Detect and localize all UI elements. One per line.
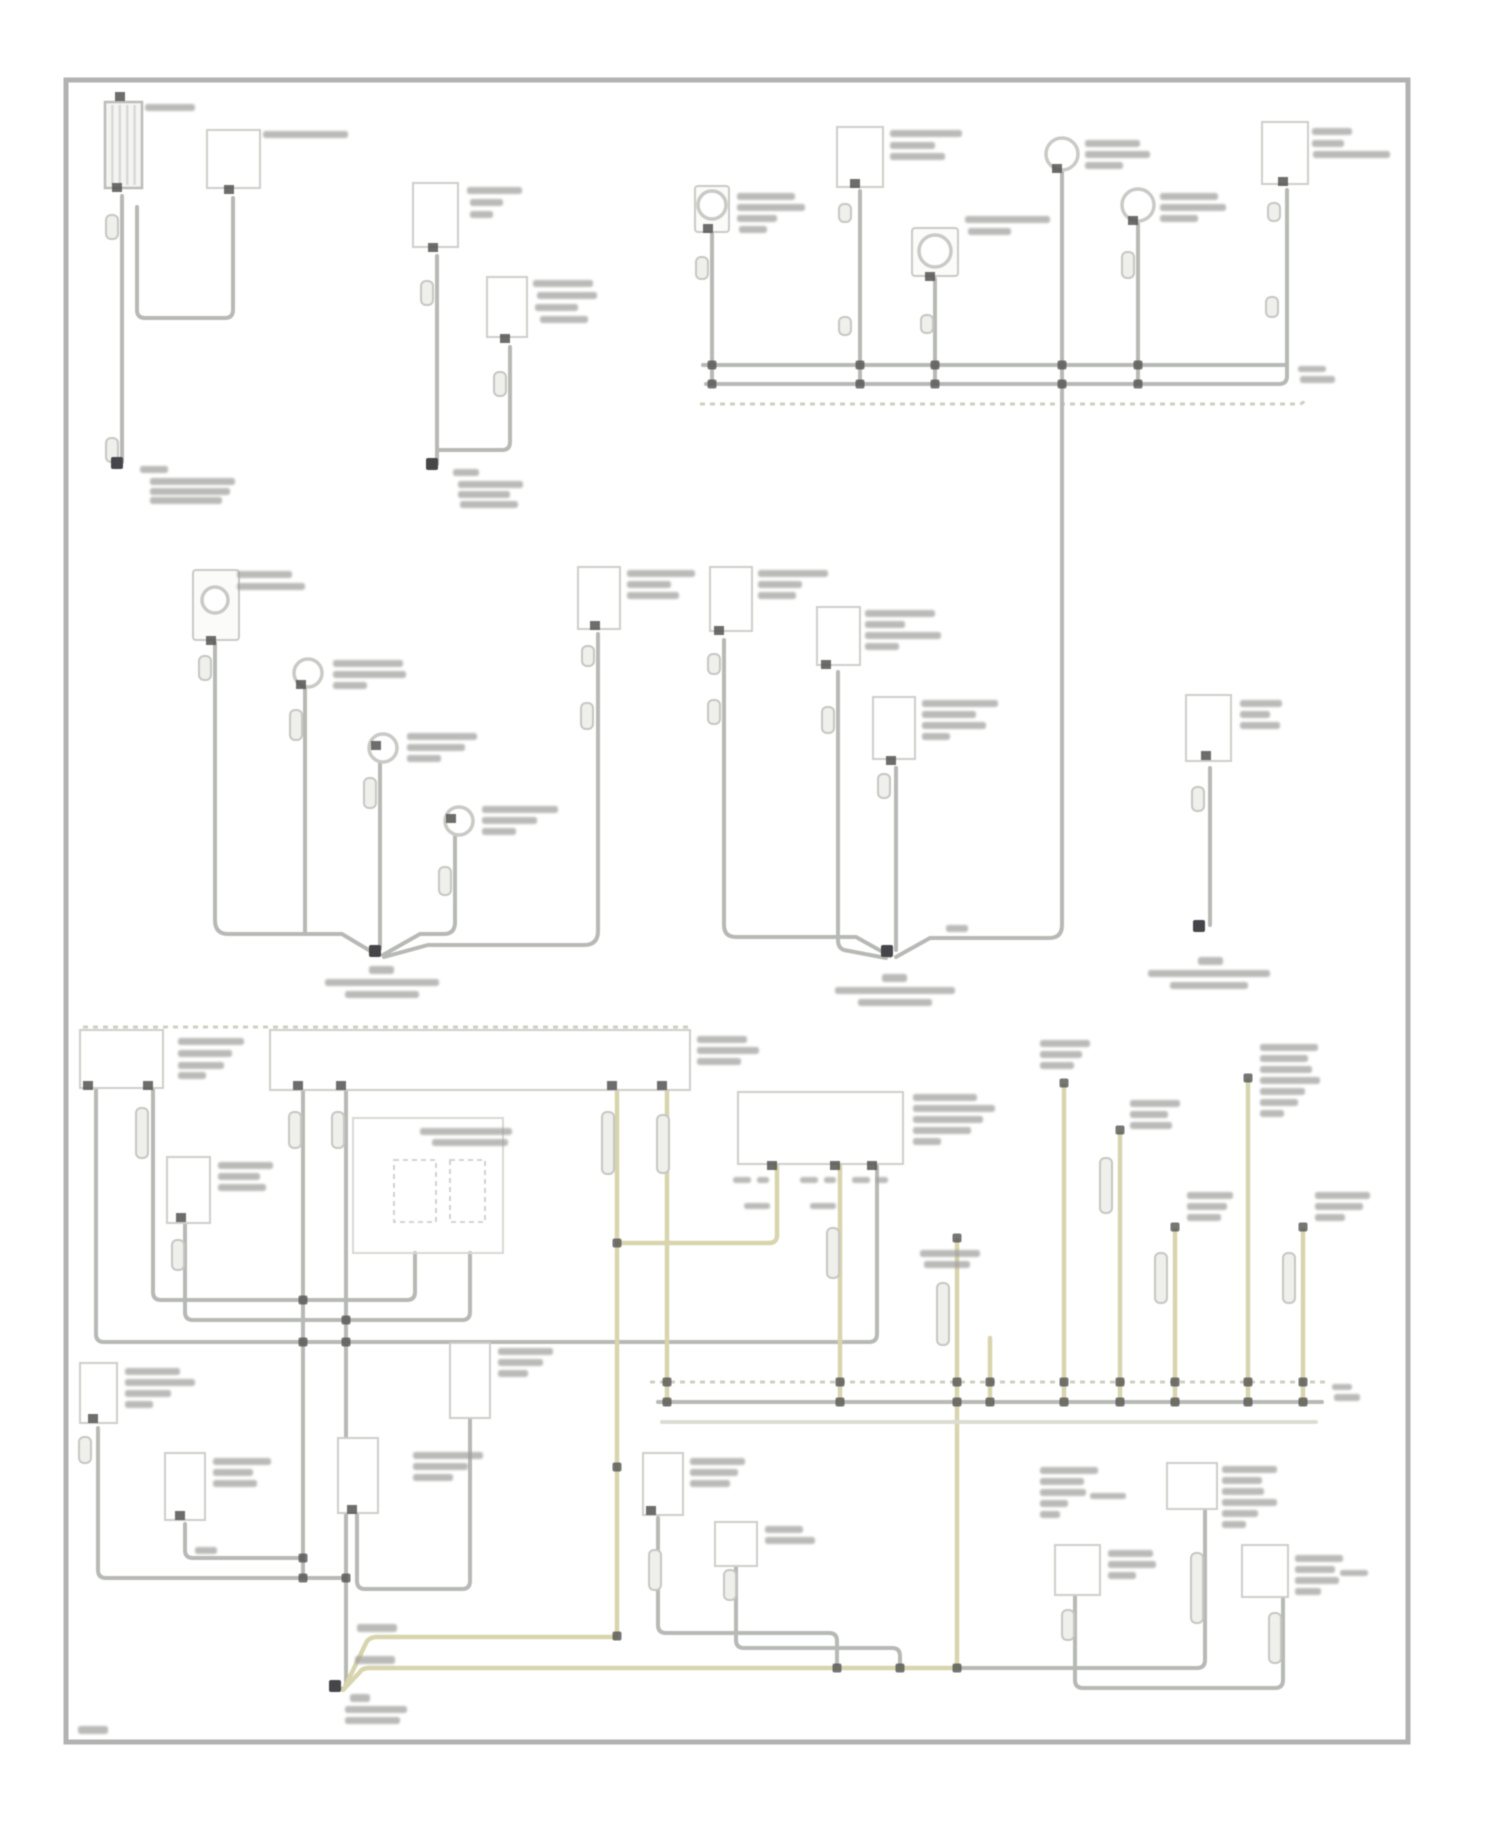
connector-bracket-icon <box>199 656 211 680</box>
wire <box>736 1567 900 1668</box>
label-text-smudge <box>690 1469 738 1476</box>
label-text-smudge <box>922 733 950 740</box>
connector-bracket-icon <box>827 1228 839 1278</box>
label-text-smudge <box>420 1128 512 1135</box>
junction-dot <box>299 1574 308 1583</box>
label-text-smudge <box>1222 1477 1262 1484</box>
terminal-square <box>347 1505 357 1514</box>
component-box <box>80 1363 117 1423</box>
label-text-smudge <box>78 1726 108 1734</box>
junction-dot <box>1244 1074 1253 1083</box>
junction-dot <box>856 380 865 389</box>
terminal-square <box>112 183 122 192</box>
connector-bracket-icon <box>421 281 433 305</box>
label-text-smudge <box>345 1717 400 1724</box>
component-box <box>413 183 458 247</box>
label-text-smudge <box>1108 1561 1156 1568</box>
label-text-smudge <box>1260 1055 1308 1062</box>
terminal-square <box>446 814 456 823</box>
junction-dot <box>953 1234 962 1243</box>
label-text-smudge <box>824 1177 836 1183</box>
label-text-smudge <box>876 1177 888 1183</box>
label-text-smudge <box>213 1480 257 1487</box>
label-text-smudge <box>1260 1077 1320 1084</box>
label-text-smudge <box>697 1047 759 1054</box>
component-box <box>873 697 915 759</box>
label-text-smudge <box>913 1105 995 1112</box>
wire <box>724 640 890 956</box>
label-text-smudge <box>913 1138 941 1145</box>
label-text-smudge <box>697 1036 747 1043</box>
dashed-line <box>700 397 1305 404</box>
junction-dot <box>896 1664 905 1673</box>
label-text-smudge <box>968 228 1011 235</box>
label-text-smudge <box>858 999 932 1006</box>
junction-dot <box>663 1378 672 1387</box>
label-text-smudge <box>150 497 222 504</box>
terminal-square <box>143 1081 153 1090</box>
terminal-square <box>176 1213 186 1222</box>
connector-bracket-icon <box>649 1550 661 1590</box>
junction-dot <box>613 1239 622 1248</box>
label-text-smudge <box>1040 1500 1068 1507</box>
component-box <box>738 1092 903 1164</box>
label-text-smudge <box>1040 1051 1082 1058</box>
label-text-smudge <box>1222 1510 1258 1517</box>
connector-bracket-icon <box>708 654 720 674</box>
lamp-icon <box>202 587 228 613</box>
component-box <box>270 1030 690 1090</box>
terminal-square <box>657 1081 667 1090</box>
label-text-smudge <box>1148 970 1270 977</box>
label-text-smudge <box>470 199 503 206</box>
label-text-smudge <box>852 1177 870 1183</box>
label-text-smudge <box>1040 1478 1084 1485</box>
junction-dot <box>342 1316 351 1325</box>
ground-distribution-diagram <box>0 0 1500 1828</box>
terminal-square <box>428 243 438 252</box>
label-text-smudge <box>1240 711 1270 718</box>
junction-dot <box>953 1378 962 1387</box>
connector-bracket-icon <box>106 215 118 239</box>
label-text-smudge <box>865 610 935 617</box>
junction-dot <box>836 1378 845 1387</box>
connector-bracket-icon <box>1062 1610 1074 1640</box>
label-text-smudge <box>178 1050 232 1057</box>
wire <box>98 1428 346 1578</box>
label-text-smudge <box>432 1139 508 1146</box>
junction-dot <box>833 1664 842 1673</box>
component-box <box>837 127 883 187</box>
label-text-smudge <box>1130 1111 1168 1118</box>
label-text-smudge <box>355 1656 395 1664</box>
relay-dashed-box <box>394 1160 436 1222</box>
label-text-smudge <box>922 700 998 707</box>
label-text-smudge <box>413 1474 453 1481</box>
label-text-smudge <box>758 581 802 588</box>
connector-bracket-icon <box>1122 252 1134 278</box>
junction-dot <box>1171 1378 1180 1387</box>
label-text-smudge <box>922 722 986 729</box>
junction-dot <box>1299 1223 1308 1232</box>
label-text-smudge <box>946 925 968 932</box>
component-box <box>715 1522 757 1566</box>
label-text-smudge <box>453 469 479 476</box>
label-text-smudge <box>1340 1570 1368 1576</box>
label-text-smudge <box>213 1458 271 1465</box>
component-box <box>710 567 752 631</box>
label-text-smudge <box>345 991 419 998</box>
label-text-smudge <box>965 216 1050 223</box>
label-text-smudge <box>125 1368 180 1375</box>
terminal-square <box>224 185 234 194</box>
terminal-square <box>500 334 510 343</box>
terminal-square <box>336 1081 346 1090</box>
label-text-smudge <box>1160 193 1218 200</box>
label-text-smudge <box>733 1177 751 1183</box>
connector-bracket-icon <box>602 1112 614 1174</box>
component-box <box>1262 122 1308 184</box>
label-text-smudge <box>697 1058 741 1065</box>
component-boxes <box>80 122 1308 1597</box>
label-text-smudge <box>765 1526 803 1533</box>
junction-dot <box>986 1398 995 1407</box>
label-text-smudge <box>498 1370 528 1377</box>
junction-dot <box>986 1378 995 1387</box>
label-text-smudge <box>145 104 195 111</box>
label-text-smudge <box>765 1537 815 1544</box>
label-text-smudge <box>1085 162 1123 169</box>
connector-bracket-icon <box>839 204 851 222</box>
component-box <box>338 1438 378 1513</box>
label-text-smudge <box>1187 1203 1227 1210</box>
label-text-smudge <box>865 643 899 650</box>
label-text-smudge <box>627 592 679 599</box>
label-text-smudge <box>237 583 305 590</box>
label-text-smudge <box>865 621 905 628</box>
label-text-smudge <box>1090 1493 1126 1499</box>
junction-dot <box>1134 380 1143 389</box>
label-text-smudge <box>1300 376 1335 383</box>
label-text-smudge <box>1040 1062 1074 1069</box>
connector-bracket-icon <box>822 707 834 733</box>
label-text-smudge <box>865 632 941 639</box>
label-text-smudge <box>1108 1550 1153 1557</box>
label-text-smudge <box>1085 151 1150 158</box>
label-text-smudge <box>922 711 976 718</box>
terminal-square <box>1278 177 1288 186</box>
label-text-smudge <box>758 592 796 599</box>
terminal-square <box>175 1511 185 1520</box>
label-text-smudge <box>737 215 777 222</box>
wire <box>137 198 233 318</box>
label-text-smudge <box>1187 1214 1221 1221</box>
label-text-smudge <box>913 1127 971 1134</box>
connector-bracket-icon <box>582 646 594 666</box>
junction-dot <box>299 1338 308 1347</box>
label-text-smudge <box>178 1072 206 1079</box>
wire <box>378 762 380 953</box>
junction-dot <box>708 361 717 370</box>
junction-dot <box>613 1632 622 1641</box>
junction-dot <box>953 1664 962 1673</box>
junction-dot <box>708 380 717 389</box>
terminal-square <box>867 1161 877 1170</box>
label-text-smudge <box>1130 1122 1172 1129</box>
wire <box>437 347 510 450</box>
label-text-smudge <box>1222 1499 1277 1506</box>
junction-dot <box>1299 1398 1308 1407</box>
label-text-smudge <box>757 1177 769 1183</box>
connector-bracket-icon <box>494 372 506 396</box>
label-text-smudge <box>1240 722 1280 729</box>
label-text-smudge <box>150 488 230 495</box>
terminal-square <box>850 179 860 188</box>
label-text-smudge <box>1040 1467 1098 1474</box>
label-text-smudge <box>1260 1044 1318 1051</box>
terminal-square <box>1128 216 1138 225</box>
junction-dot <box>856 361 865 370</box>
label-text-smudge <box>218 1162 273 1169</box>
label-text-smudge <box>345 1706 407 1713</box>
label-text-smudge <box>1040 1511 1060 1518</box>
label-text-smudge <box>467 187 522 194</box>
label-text-smudge <box>537 292 597 299</box>
ground-point-icon <box>1193 920 1205 932</box>
label-text-smudge <box>739 226 767 233</box>
ground-point-icon <box>426 458 438 470</box>
junction-dot <box>1116 1398 1125 1407</box>
striped-box-body <box>105 102 142 188</box>
label-text-smudge <box>263 131 348 138</box>
junction-dot <box>1060 1378 1069 1387</box>
wire <box>215 643 377 955</box>
connector-bracket-icon <box>937 1283 949 1345</box>
terminal-square <box>821 660 831 669</box>
label-text-smudge <box>218 1173 260 1180</box>
label-text-smudge <box>1170 982 1248 989</box>
junction-dot <box>1171 1223 1180 1232</box>
label-text-smudge <box>1315 1214 1345 1221</box>
label-text-smudge <box>470 211 493 218</box>
wire <box>185 1225 470 1320</box>
junction-dot <box>1299 1378 1308 1387</box>
junction-dot <box>613 1463 622 1472</box>
label-text-smudge <box>540 316 588 323</box>
connector-bracket-icon <box>696 257 708 279</box>
terminal-square <box>607 1081 617 1090</box>
label-text-smudge <box>1222 1488 1264 1495</box>
label-text-smudge <box>737 193 795 200</box>
component-box <box>578 567 620 629</box>
label-text-smudge <box>758 570 828 577</box>
terminal-square <box>1201 751 1211 760</box>
wire <box>896 172 1062 957</box>
terminal-square <box>296 680 306 689</box>
label-text-smudge <box>150 478 235 485</box>
terminal-square <box>206 636 216 645</box>
component-box <box>1167 1463 1217 1509</box>
label-text-smudge <box>140 466 168 473</box>
connector-bracket-icon <box>1283 1253 1295 1303</box>
junction-dot <box>1060 1079 1069 1088</box>
label-text-smudge <box>125 1390 171 1397</box>
label-text-smudge <box>1298 366 1326 372</box>
label-text-smudge <box>1222 1521 1246 1528</box>
label-text-smudge <box>413 1463 468 1470</box>
terminal-square <box>1052 164 1062 173</box>
terminal-square <box>590 621 600 630</box>
junction-dot <box>342 1574 351 1583</box>
connector-bracket-icon <box>136 1108 148 1158</box>
connector-bracket-icon <box>79 1437 91 1463</box>
label-text-smudge <box>890 153 945 160</box>
label-text-smudge <box>498 1348 553 1355</box>
ground-point-icon <box>881 945 893 957</box>
striped-connector-box <box>105 102 142 188</box>
label-text-smudge <box>882 974 907 982</box>
wire <box>343 1668 957 1690</box>
label-text-smudge <box>1312 128 1352 135</box>
component-box <box>207 130 260 188</box>
label-text-smudge <box>1260 1066 1312 1073</box>
label-text-smudge <box>1313 151 1390 158</box>
label-text-smudge <box>325 979 439 986</box>
junction-dot <box>931 361 940 370</box>
lamps <box>193 138 1154 835</box>
label-text-smudge <box>482 806 558 813</box>
label-text-smudge <box>458 491 510 498</box>
label-text-smudge <box>890 130 962 137</box>
label-text-smudge <box>890 142 935 149</box>
terminal-square <box>83 1081 93 1090</box>
label-text-smudge <box>125 1379 195 1386</box>
junction-dot <box>953 1398 962 1407</box>
label-text-smudge <box>1312 140 1344 147</box>
connector-bracket-icon <box>364 778 376 808</box>
ground-point-icon <box>111 457 123 469</box>
connector-bracket-icon <box>290 710 302 740</box>
connector-bracket-icon <box>1192 787 1204 811</box>
component-box <box>1055 1545 1100 1595</box>
junction-dot <box>342 1338 351 1347</box>
label-text-smudge <box>1315 1203 1363 1210</box>
component-box <box>1242 1545 1288 1597</box>
connector-bracket-icon <box>1191 1553 1203 1623</box>
label-text-smudge <box>1260 1099 1298 1106</box>
label-text-smudge <box>1222 1466 1277 1473</box>
label-text-smudge <box>407 744 465 751</box>
terminal-square <box>88 1414 98 1423</box>
label-text-smudge <box>1260 1110 1284 1117</box>
dashed-bus-lines <box>83 397 1330 1382</box>
terminal-square <box>646 1506 656 1515</box>
junction-dot <box>1244 1398 1253 1407</box>
label-text-smudge <box>1315 1192 1370 1199</box>
label-text-smudge <box>535 304 578 311</box>
label-text-smudge <box>690 1458 745 1465</box>
label-text-smudge <box>195 1547 217 1554</box>
relay-dashed-box <box>450 1160 485 1222</box>
label-text-smudge <box>1108 1572 1136 1579</box>
label-text-smudge <box>690 1480 730 1487</box>
label-text-smudge <box>627 581 671 588</box>
connector-bracket-icon <box>657 1115 669 1173</box>
junction-dot <box>1171 1398 1180 1407</box>
label-text-smudge <box>178 1062 224 1069</box>
label-text-smudge <box>125 1401 153 1408</box>
label-text-smudge <box>533 280 593 287</box>
connector-bracket-icon <box>708 700 720 724</box>
terminal-square <box>886 756 896 765</box>
label-text-smudge <box>810 1203 836 1209</box>
label-text-smudge <box>920 1250 980 1257</box>
label-text-smudge <box>1295 1566 1335 1573</box>
junction-dot <box>1134 361 1143 370</box>
component-box <box>450 1343 490 1418</box>
component-box <box>487 277 527 337</box>
label-text-smudge <box>213 1469 253 1476</box>
label-text-smudge <box>407 755 441 762</box>
label-text-smudge <box>1295 1555 1343 1562</box>
label-text-smudge <box>1160 204 1226 211</box>
label-text-smudge <box>1160 215 1198 222</box>
label-text-smudge <box>800 1177 818 1183</box>
label-text-smudge <box>482 828 516 835</box>
label-text-smudge <box>913 1116 983 1123</box>
terminal-square <box>293 1081 303 1090</box>
wire <box>341 1090 346 1689</box>
junction-dot <box>1058 361 1067 370</box>
label-text-smudge <box>1187 1192 1233 1199</box>
component-box <box>817 607 860 665</box>
connector-bracket-icon <box>878 774 890 798</box>
connector-bracket-icon <box>1100 1158 1112 1213</box>
connector-bracket-icon <box>1268 203 1280 221</box>
junction-dot <box>1058 380 1067 389</box>
label-text-smudge <box>407 733 477 740</box>
label-text-smudge <box>1332 1384 1352 1390</box>
component-box <box>643 1453 683 1515</box>
component-box <box>80 1030 163 1088</box>
connector-bracket-icon <box>581 703 593 729</box>
label-text-smudge <box>218 1184 266 1191</box>
component-box <box>165 1453 205 1520</box>
connector-bracket-icon <box>439 867 451 895</box>
connector-bracket-icon <box>839 317 851 335</box>
terminal-square <box>714 626 724 635</box>
ground-point-icon <box>329 1680 341 1692</box>
junction-dot <box>1244 1378 1253 1387</box>
junction-dot <box>299 1296 308 1305</box>
label-text-smudge <box>1130 1100 1180 1107</box>
junction-dot <box>663 1398 672 1407</box>
terminal-square <box>115 92 125 101</box>
junction-dot <box>1116 1378 1125 1387</box>
terminal-square <box>767 1161 777 1170</box>
terminal-square <box>925 272 935 281</box>
connector-bracket-icon <box>172 1240 184 1270</box>
label-text-smudge <box>835 987 955 994</box>
label-text-smudge <box>237 571 292 578</box>
label-text-smudge <box>460 501 518 508</box>
label-text-smudge <box>744 1203 770 1209</box>
junction-dot <box>1116 1126 1125 1135</box>
label-text-smudge <box>1260 1088 1305 1095</box>
connector-bracket-icon <box>921 315 933 333</box>
label-text-smudge <box>178 1038 244 1045</box>
connector-bracket-icon <box>724 1570 736 1600</box>
